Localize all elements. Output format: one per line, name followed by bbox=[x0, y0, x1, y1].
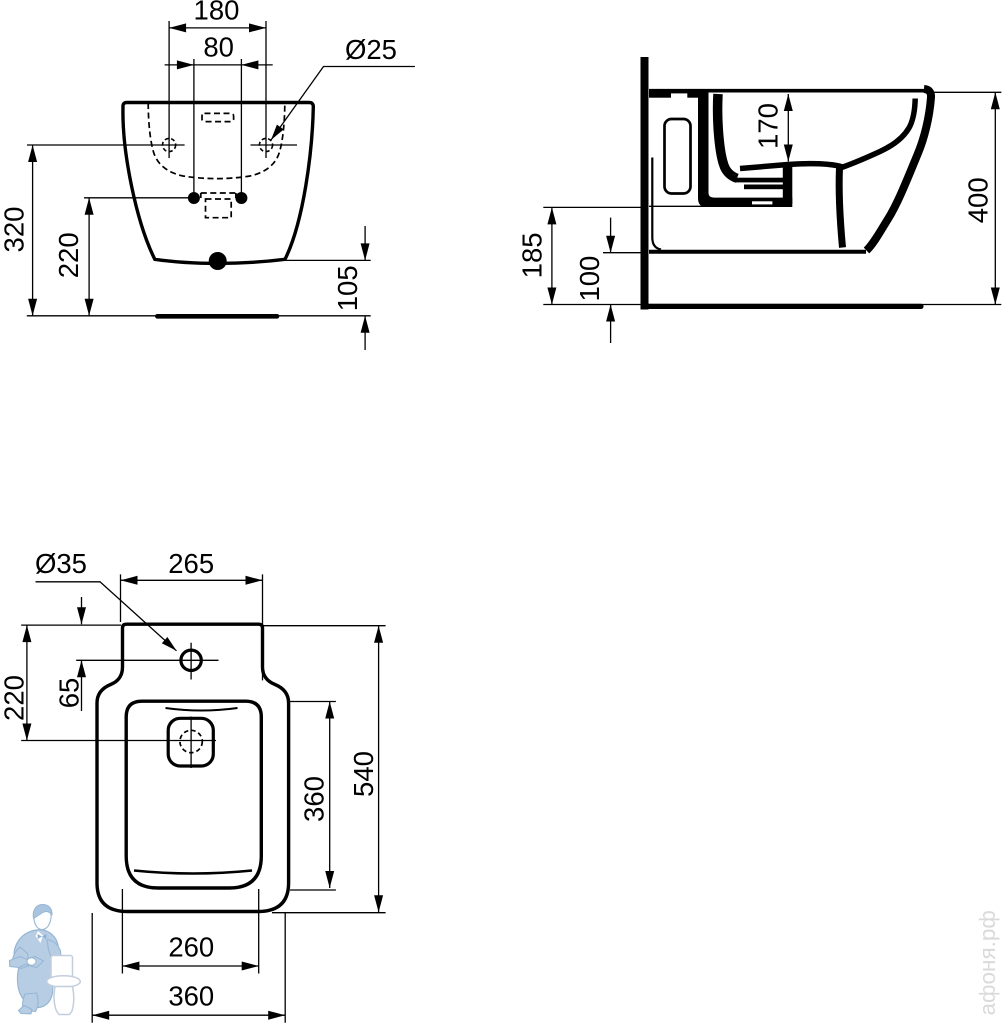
svg-text:афоня.рф: афоня.рф bbox=[975, 910, 1000, 1015]
svg-text:Ø35: Ø35 bbox=[35, 548, 87, 579]
svg-text:105: 105 bbox=[332, 265, 363, 311]
svg-text:400: 400 bbox=[963, 177, 994, 223]
svg-text:170: 170 bbox=[753, 103, 784, 149]
svg-text:220: 220 bbox=[0, 675, 29, 721]
svg-text:180: 180 bbox=[194, 0, 240, 26]
svg-text:360: 360 bbox=[299, 776, 330, 822]
svg-text:Ø25: Ø25 bbox=[345, 34, 397, 65]
svg-text:320: 320 bbox=[0, 207, 30, 253]
svg-text:260: 260 bbox=[168, 932, 214, 963]
svg-text:185: 185 bbox=[517, 232, 548, 278]
svg-text:100: 100 bbox=[574, 256, 605, 302]
svg-text:540: 540 bbox=[348, 751, 379, 797]
svg-text:80: 80 bbox=[203, 32, 234, 63]
svg-text:220: 220 bbox=[53, 232, 84, 278]
svg-text:65: 65 bbox=[54, 678, 85, 709]
svg-text:360: 360 bbox=[168, 981, 214, 1012]
svg-text:265: 265 bbox=[168, 548, 214, 579]
